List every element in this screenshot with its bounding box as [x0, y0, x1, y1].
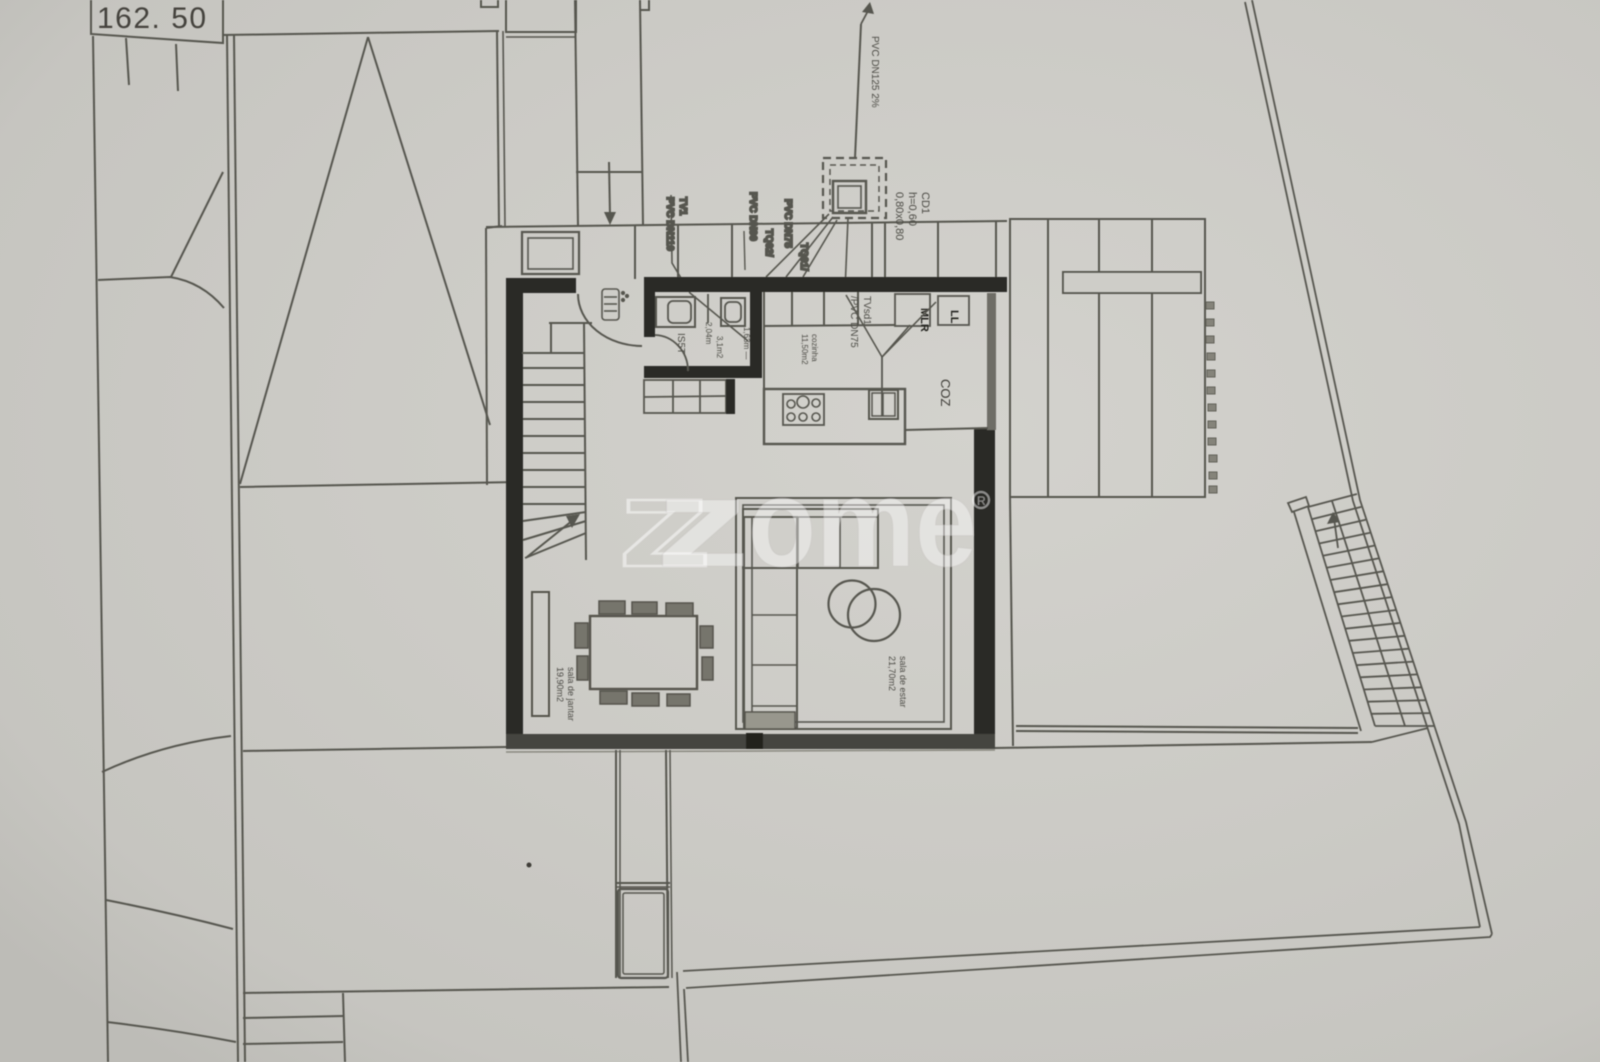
svg-text:ome: ome	[748, 454, 977, 593]
svg-text:PVC DN90: PVC DN90	[747, 192, 758, 241]
svg-text:PVC DN125 2%: PVC DN125 2%	[869, 36, 880, 108]
svg-text:2,04m: 2,04m	[704, 322, 713, 345]
svg-text:R: R	[977, 494, 986, 508]
svg-text:cozinha11,50m2: cozinha11,50m2	[800, 334, 819, 365]
svg-text:LL: LL	[948, 310, 960, 324]
svg-text:162. 50: 162. 50	[97, 2, 208, 35]
svg-text:TQ01/: TQ01/	[798, 243, 809, 271]
svg-text:3,1m2: 3,1m2	[715, 336, 724, 359]
svg-text:TQ02/: TQ02/	[763, 229, 774, 257]
svg-text:1,63m —: 1,63m —	[742, 327, 751, 359]
svg-text:z: z	[655, 454, 750, 593]
svg-text:COZ: COZ	[938, 379, 953, 407]
svg-text:PVC DN75: PVC DN75	[782, 199, 793, 248]
svg-text:IS5T: IS5T	[675, 333, 686, 354]
svg-text:MLR: MLR	[918, 308, 930, 332]
